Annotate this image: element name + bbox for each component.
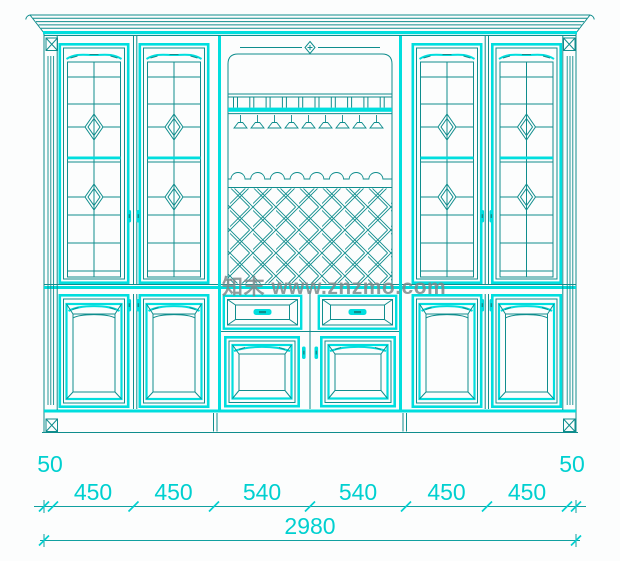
panel-door-1 xyxy=(60,295,128,406)
glass-door-1 xyxy=(60,44,128,282)
pilaster-right xyxy=(563,36,575,411)
dim-label-seg-2: 450 xyxy=(154,479,192,505)
panel-door-2 xyxy=(140,295,208,406)
dim-label-total: 2980 xyxy=(284,513,335,539)
dim-label-seg-4: 540 xyxy=(339,479,377,505)
cad-canvas: 50 50 450 450 540 540 450 450 2980 知末 ww… xyxy=(0,0,620,561)
wine-lattice-rack xyxy=(229,189,392,284)
dim-label-seg-1: 450 xyxy=(74,479,112,505)
dim-label-seg-3: 540 xyxy=(243,479,281,505)
center-door-left xyxy=(225,337,298,406)
pilaster-left xyxy=(46,36,58,411)
glass-door-2 xyxy=(140,44,208,282)
dim-label-right-overhang: 50 xyxy=(559,451,585,477)
panel-door-3 xyxy=(413,295,481,406)
center-top-ornament xyxy=(240,42,380,54)
dim-label-seg-5: 450 xyxy=(427,479,465,505)
dim-label-left-overhang: 50 xyxy=(37,451,63,477)
hanging-wine-glasses xyxy=(234,115,383,128)
watermark: 知末 www.znzmo.com xyxy=(222,271,446,301)
plinth xyxy=(42,413,578,433)
panel-door-4 xyxy=(492,295,560,406)
scallop-rail xyxy=(228,173,392,188)
dimension-annotations: 50 50 450 450 540 540 450 450 2980 xyxy=(34,451,586,547)
glass-door-3 xyxy=(413,44,481,282)
stemware-rack xyxy=(228,94,392,114)
cornice xyxy=(26,15,594,36)
glass-door-4 xyxy=(492,44,560,282)
dim-label-seg-6: 450 xyxy=(508,479,546,505)
center-door-right xyxy=(321,337,394,406)
